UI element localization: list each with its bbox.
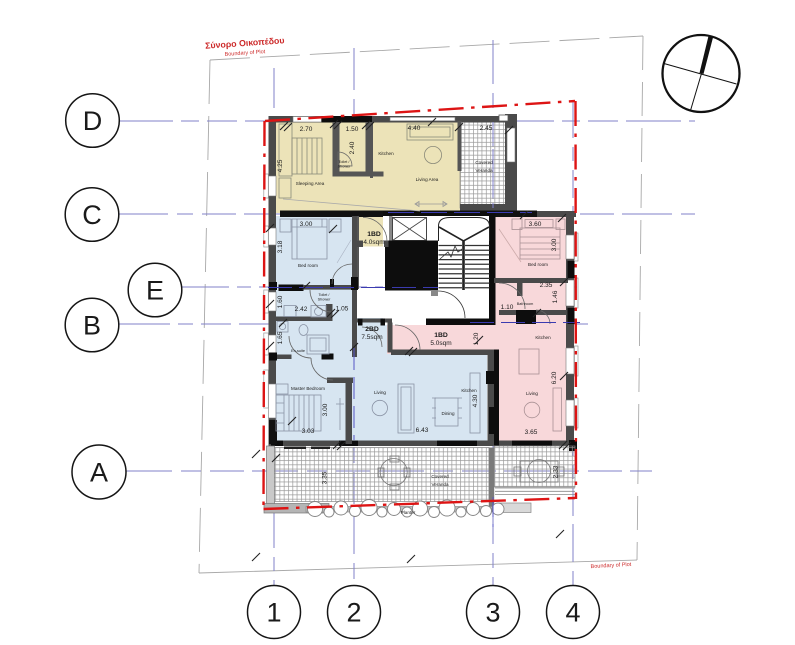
svg-text:Bed room: Bed room	[298, 263, 318, 268]
svg-text:1.65: 1.65	[277, 331, 284, 344]
svg-text:Covered: Covered	[431, 474, 449, 479]
svg-text:2.33: 2.33	[553, 465, 560, 478]
svg-text:E: E	[146, 276, 164, 306]
svg-text:D: D	[83, 106, 103, 136]
svg-text:7.5sqm: 7.5sqm	[361, 334, 382, 341]
svg-text:B: B	[83, 311, 101, 341]
svg-text:Veranda: Veranda	[475, 168, 493, 173]
svg-text:Veranda: Veranda	[431, 482, 449, 487]
svg-text:3.00: 3.00	[300, 221, 313, 228]
svg-text:3.60: 3.60	[529, 221, 542, 228]
svg-text:1.46: 1.46	[552, 290, 559, 303]
svg-text:Kitchen: Kitchen	[378, 151, 394, 156]
svg-text:C: C	[82, 200, 102, 230]
svg-text:Master Bedroom: Master Bedroom	[291, 386, 325, 391]
svg-text:1BD: 1BD	[434, 332, 448, 339]
svg-text:4.30: 4.30	[472, 394, 479, 407]
svg-text:3.00: 3.00	[551, 238, 558, 251]
svg-text:Toilet /: Toilet /	[339, 160, 351, 164]
svg-text:3.03: 3.03	[302, 428, 315, 435]
svg-text:Planter: Planter	[401, 510, 416, 515]
svg-text:1.60: 1.60	[277, 295, 284, 308]
svg-text:2.40: 2.40	[349, 141, 356, 154]
svg-text:1.20: 1.20	[473, 332, 480, 345]
svg-text:2: 2	[346, 598, 361, 628]
svg-text:Dining: Dining	[441, 411, 454, 416]
svg-text:1.05: 1.05	[336, 306, 349, 313]
svg-text:Shower: Shower	[318, 298, 332, 302]
svg-text:1BD: 1BD	[367, 231, 381, 238]
svg-text:2.42: 2.42	[295, 306, 308, 313]
svg-text:1: 1	[266, 598, 281, 628]
svg-text:6.20: 6.20	[551, 371, 558, 384]
svg-text:3.35: 3.35	[322, 471, 329, 484]
svg-text:6.43: 6.43	[416, 427, 429, 434]
svg-text:3.65: 3.65	[525, 429, 538, 436]
svg-text:A: A	[90, 458, 108, 488]
svg-text:Kitchen: Kitchen	[535, 335, 551, 340]
svg-text:2.35: 2.35	[540, 282, 553, 289]
svg-text:Living: Living	[526, 391, 538, 396]
svg-text:2.70: 2.70	[300, 126, 313, 133]
svg-text:5.0sqm: 5.0sqm	[430, 340, 451, 347]
svg-text:Kitchen: Kitchen	[461, 388, 477, 393]
svg-text:Bed room: Bed room	[528, 262, 548, 267]
svg-text:4.25: 4.25	[277, 159, 284, 172]
svg-text:Sleeping Area: Sleeping Area	[296, 181, 325, 186]
svg-text:En-suite: En-suite	[291, 349, 305, 353]
svg-text:3.00: 3.00	[322, 403, 329, 416]
svg-text:Covered: Covered	[475, 160, 493, 165]
svg-text:Bathroom: Bathroom	[517, 302, 533, 306]
svg-text:Living: Living	[374, 390, 386, 395]
svg-text:3: 3	[485, 598, 500, 628]
svg-text:1.50: 1.50	[346, 126, 359, 133]
svg-text:4.40: 4.40	[408, 125, 421, 132]
svg-text:4.0sqm: 4.0sqm	[363, 239, 384, 246]
svg-text:2.45: 2.45	[480, 125, 493, 132]
svg-text:Shower: Shower	[338, 165, 352, 169]
svg-text:2BD: 2BD	[365, 326, 379, 333]
svg-text:3.18: 3.18	[277, 240, 284, 253]
svg-text:4: 4	[565, 598, 580, 628]
svg-text:Toilet /: Toilet /	[319, 293, 331, 297]
svg-text:1.10: 1.10	[501, 304, 514, 311]
svg-text:Living Area: Living Area	[416, 177, 439, 182]
